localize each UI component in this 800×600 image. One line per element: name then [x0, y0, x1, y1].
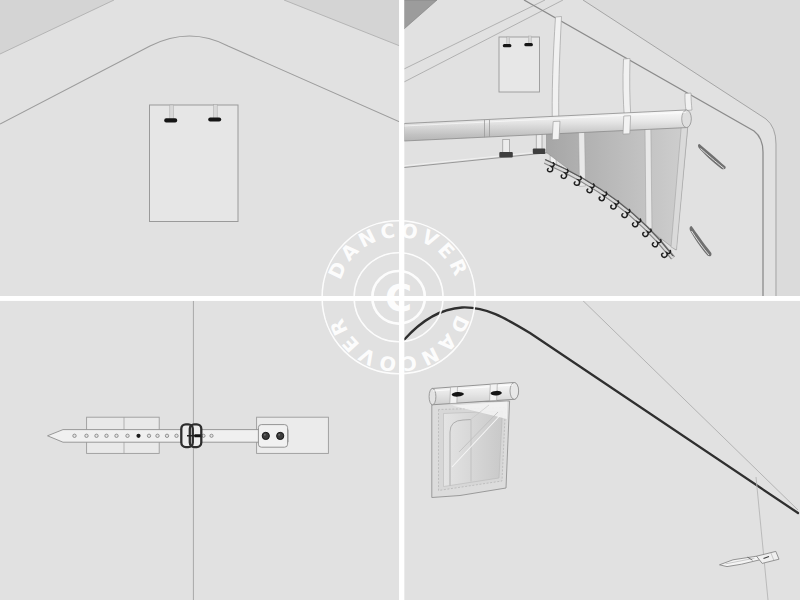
- tl-toggle-icon: [164, 118, 177, 122]
- illustration-rolled-flap: [403, 296, 800, 600]
- illustration-interior-frame: [404, 0, 800, 296]
- collage-canvas: C DANCOVER DANCOVER: [0, 0, 800, 600]
- tl-toggle-stem-left: [170, 105, 174, 120]
- tl-toggle-icon: [208, 117, 221, 121]
- bl-rivet: [262, 432, 269, 439]
- tr-toggle-icon: [524, 43, 533, 46]
- watermark-copyright-letter: C: [385, 277, 412, 320]
- tr-toggle-icon: [503, 44, 512, 47]
- bl-rivet: [277, 432, 284, 439]
- tl-toggle-stem-right: [214, 105, 218, 120]
- product-image: C DANCOVER DANCOVER: [0, 0, 800, 600]
- bl-selected-eyelet: [136, 434, 140, 438]
- tl-cover-panel: [150, 105, 239, 222]
